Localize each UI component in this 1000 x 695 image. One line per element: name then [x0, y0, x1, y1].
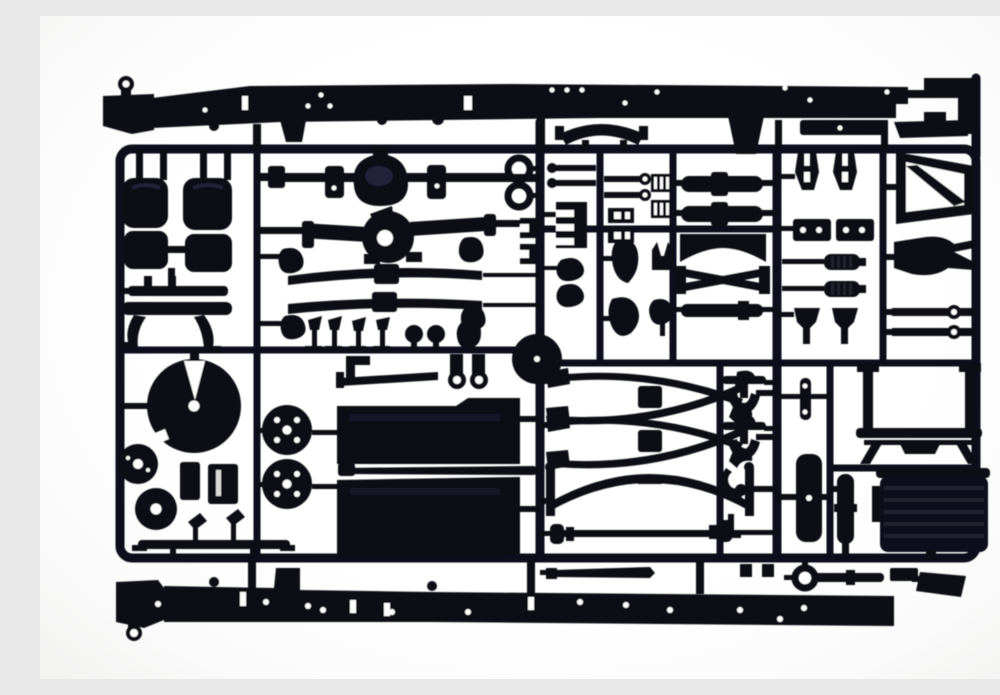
towing-pin-ring	[784, 562, 884, 588]
u-bolt-clamps	[448, 354, 488, 389]
muffler-cylinder-1	[673, 172, 777, 196]
battery-boxes	[180, 462, 238, 504]
number-plate-bracket	[912, 572, 966, 597]
passenger-seat	[168, 149, 232, 272]
wind-deflector-frame	[883, 152, 974, 224]
ribbed-fuel-tank	[872, 468, 990, 560]
hydraulic-cylinder	[830, 474, 857, 558]
fork-bracket	[652, 242, 673, 270]
chassis-rail-bottom	[116, 568, 894, 641]
slotted-valve-bracket	[544, 202, 587, 248]
pipe-clamps	[520, 218, 537, 264]
linkage-rods	[547, 163, 596, 188]
v-link-brackets	[777, 308, 858, 344]
drive-shaft	[540, 522, 777, 544]
step-brackets	[651, 174, 672, 218]
brake-drum-1	[118, 444, 158, 484]
spring-hanger-forks	[777, 152, 857, 190]
frame-liner-strip	[777, 454, 830, 542]
muffler-cylinder-2	[673, 202, 777, 226]
steering-yoke	[883, 237, 974, 276]
crossmember-concave	[680, 234, 766, 262]
trim-strip	[540, 567, 655, 579]
shock-absorber-2	[782, 281, 866, 297]
wheel-hub-2	[254, 459, 312, 509]
torque-rods	[883, 305, 976, 339]
brake-drum-2	[135, 488, 177, 530]
exhaust-pipe-rod	[338, 463, 543, 476]
fifth-wheel-plate	[120, 350, 241, 453]
gear-lever-set	[305, 316, 390, 351]
leaf-brackets	[544, 258, 584, 307]
towing-eyes	[508, 158, 540, 207]
shock-absorber-1	[782, 254, 866, 270]
drilled-pin-strip	[777, 378, 830, 420]
photo-model-kit-sprue	[40, 16, 1000, 679]
sprue-photo-svg	[40, 16, 1000, 679]
air-reservoir	[673, 301, 777, 320]
catwalk-frame	[856, 363, 982, 464]
leaf-spring-1	[288, 264, 540, 285]
seat-base-frame	[120, 268, 232, 353]
crossmember-x	[675, 266, 770, 294]
eye-end-rods	[604, 173, 651, 201]
drilled-plates	[777, 219, 874, 241]
chassis-rail-top	[103, 76, 960, 154]
chassis-panel-lower	[312, 477, 540, 557]
chassis-panel-upper	[312, 398, 540, 464]
rear-axle-differential	[257, 147, 540, 206]
angled-brackets	[188, 509, 245, 541]
mud-flaps	[602, 240, 639, 336]
leaf-spring-2	[288, 292, 540, 314]
driver-seat	[122, 149, 168, 269]
wheel-hub-1	[254, 405, 312, 455]
